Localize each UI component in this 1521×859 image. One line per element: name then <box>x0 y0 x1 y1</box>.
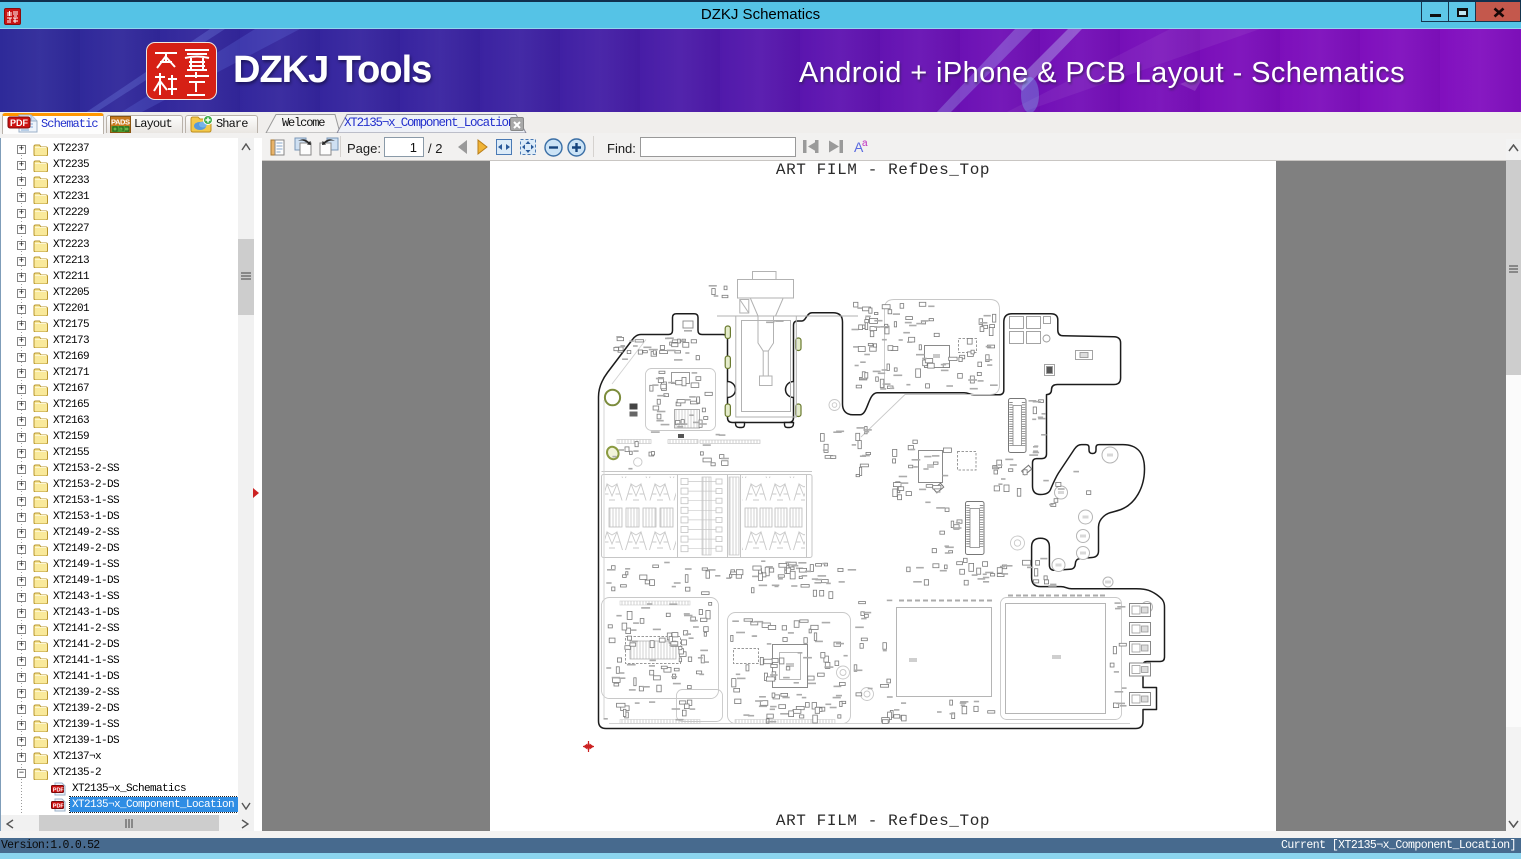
svg-text:PDF: PDF <box>10 118 29 128</box>
svg-text:PDF: PDF <box>53 803 65 809</box>
svg-text:a: a <box>862 138 868 149</box>
svg-text:PDF: PDF <box>53 787 65 793</box>
svg-text:PADS: PADS <box>111 118 130 127</box>
